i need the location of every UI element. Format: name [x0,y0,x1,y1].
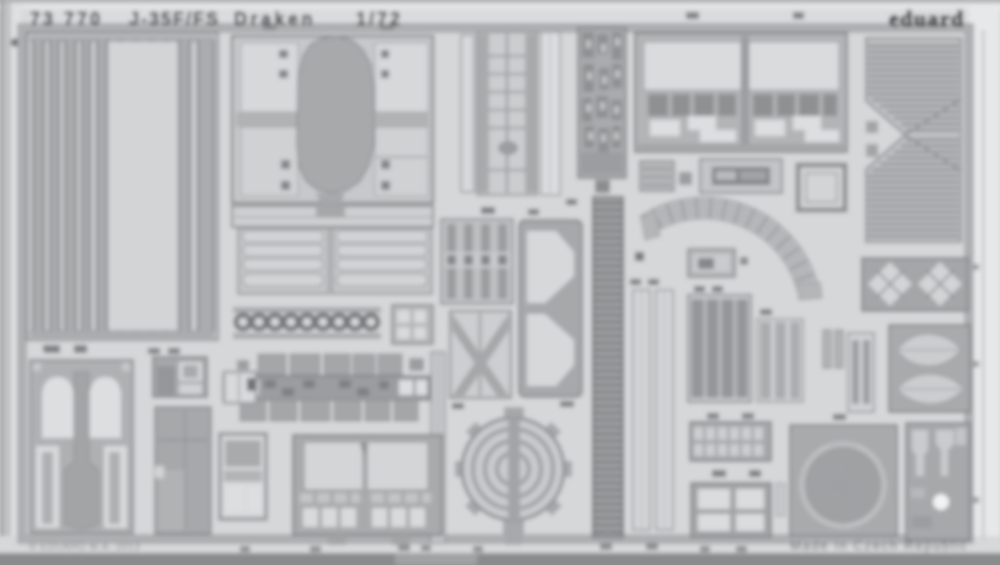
svg-text:eduard: eduard [889,6,965,31]
svg-text:© EDUARD M.A. 2013: © EDUARD M.A. 2013 [29,542,141,553]
svg-text:Made in Czech Republic: Made in Czech Republic [790,538,968,553]
svg-text:Draken: Draken [234,9,316,29]
svg-text:73 770: 73 770 [30,9,103,29]
svg-text:J-35F/FS: J-35F/FS [129,9,220,29]
svg-text:1/72: 1/72 [356,9,403,29]
